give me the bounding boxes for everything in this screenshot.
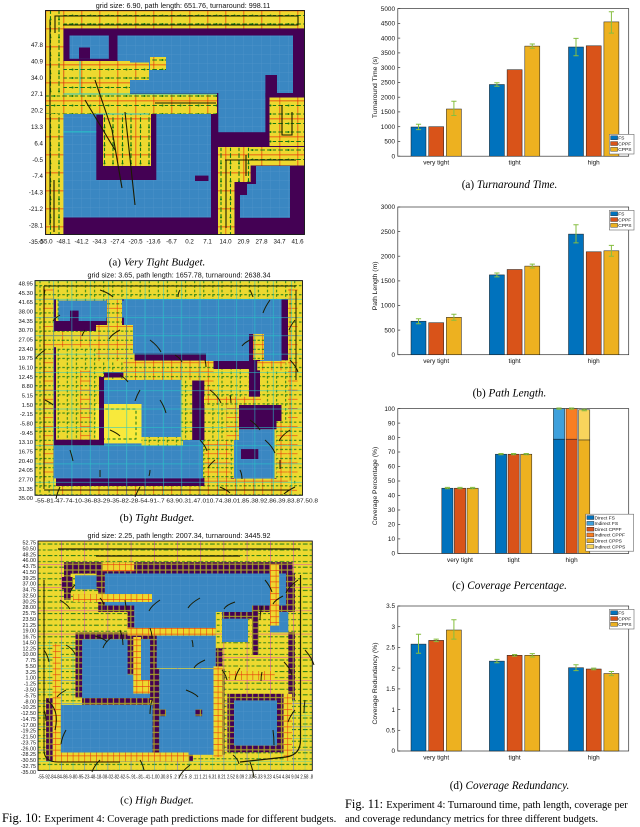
svg-text:60: 60 — [388, 464, 396, 471]
svg-text:500: 500 — [384, 327, 395, 334]
svg-text:30: 30 — [388, 507, 396, 514]
svg-text:1500: 1500 — [381, 109, 396, 116]
svg-text:(b) Path Length.: (b) Path Length. — [473, 388, 547, 400]
svg-text:FS: FS — [618, 611, 625, 617]
svg-text:34.0: 34.0 — [31, 75, 44, 82]
svg-text:50: 50 — [388, 478, 396, 485]
svg-text:80: 80 — [388, 435, 396, 442]
svg-text:(c) Coverage Percentage.: (c) Coverage Percentage. — [452, 580, 567, 592]
svg-text:3.5: 3.5 — [386, 603, 395, 610]
svg-text:2500: 2500 — [381, 229, 396, 236]
svg-text:Coverage Redundancy (%): Coverage Redundancy (%) — [372, 643, 379, 725]
svg-text:Path Length (m): Path Length (m) — [372, 261, 379, 310]
svg-text:Fig. 11: Experiment 4: Turnaro: Fig. 11: Experiment 4: Turnaround time, … — [345, 797, 628, 811]
svg-text:70: 70 — [388, 449, 396, 456]
svg-text:16.10: 16.10 — [18, 366, 33, 372]
svg-text:CPPS: CPPS — [618, 147, 632, 153]
svg-text:500: 500 — [384, 139, 395, 146]
svg-text:CPPS: CPPS — [618, 223, 632, 229]
svg-text:12.45: 12.45 — [18, 375, 33, 381]
svg-text:20.9: 20.9 — [237, 239, 250, 246]
svg-text:-14.3: -14.3 — [29, 190, 44, 197]
svg-text:-2.15: -2.15 — [20, 412, 33, 418]
svg-text:40: 40 — [388, 493, 396, 500]
svg-text:-35.00: -35.00 — [21, 770, 36, 776]
svg-text:(b) Tight Budget.: (b) Tight Budget. — [120, 512, 195, 524]
svg-text:Indirect CPPF: Indirect CPPF — [595, 533, 625, 539]
svg-text:5.15: 5.15 — [22, 394, 33, 400]
svg-text:3000: 3000 — [381, 204, 396, 211]
svg-text:41.65: 41.65 — [18, 300, 33, 306]
svg-text:high: high — [588, 358, 601, 365]
svg-text:7.1: 7.1 — [203, 239, 212, 246]
svg-text:grid size: 3.65, path length:: grid size: 3.65, path length: 1657.78, t… — [87, 271, 270, 280]
svg-text:-20.5: -20.5 — [128, 239, 143, 246]
svg-text:CPPF: CPPF — [618, 141, 631, 147]
svg-text:very tight: very tight — [423, 358, 449, 365]
svg-text:Indirect CPPS: Indirect CPPS — [595, 544, 626, 550]
svg-text:-48.1: -48.1 — [56, 239, 71, 246]
svg-text:tight: tight — [509, 160, 521, 167]
svg-text:high: high — [588, 160, 601, 167]
svg-text:4500: 4500 — [381, 21, 396, 28]
svg-text:-9.45: -9.45 — [20, 431, 33, 437]
svg-text:Direct CPPF: Direct CPPF — [595, 527, 622, 533]
svg-text:(a) Very Tight Budget.: (a) Very Tight Budget. — [109, 257, 206, 269]
svg-text:-55-92-84-84-86-9-80-95-23-48-: -55-92-84-84-86-9-80-95-23-48-18-08-02-8… — [38, 775, 313, 781]
svg-text:FS: FS — [618, 212, 625, 218]
svg-text:-21.2: -21.2 — [29, 206, 44, 213]
svg-text:-7.4: -7.4 — [32, 173, 43, 180]
svg-text:35.00: 35.00 — [18, 496, 33, 502]
svg-text:20: 20 — [388, 522, 396, 529]
svg-text:16.75: 16.75 — [18, 449, 33, 455]
svg-text:very tight: very tight — [423, 160, 449, 167]
svg-text:-27.4: -27.4 — [110, 239, 125, 246]
svg-text:2500: 2500 — [381, 80, 396, 87]
svg-text:3000: 3000 — [381, 65, 396, 72]
svg-text:CPPF: CPPF — [618, 616, 631, 622]
svg-text:Turnaround Time (s): Turnaround Time (s) — [372, 57, 379, 118]
svg-text:4000: 4000 — [381, 35, 396, 42]
svg-text:1000: 1000 — [381, 303, 396, 310]
svg-text:41.6: 41.6 — [291, 239, 304, 246]
svg-text:6.4: 6.4 — [34, 140, 43, 147]
svg-text:-34.3: -34.3 — [92, 239, 107, 246]
svg-text:31.35: 31.35 — [18, 487, 33, 493]
svg-text:-41.2: -41.2 — [74, 239, 89, 246]
svg-text:47.8: 47.8 — [31, 42, 44, 49]
svg-text:Direct CPPS: Direct CPPS — [595, 539, 623, 545]
svg-text:1500: 1500 — [381, 278, 396, 285]
svg-text:1.50: 1.50 — [22, 403, 33, 409]
svg-text:(a) Turnaround Time.: (a) Turnaround Time. — [462, 179, 558, 191]
svg-text:and coverage redundancy metric: and coverage redundancy metrics for thre… — [345, 814, 598, 825]
svg-text:-0.5: -0.5 — [32, 157, 43, 164]
svg-text:3: 3 — [391, 624, 395, 631]
svg-text:Coverage Percentage (%): Coverage Percentage (%) — [372, 447, 379, 526]
svg-text:2.5: 2.5 — [386, 645, 395, 652]
svg-text:20.2: 20.2 — [31, 108, 44, 115]
svg-text:grid size: 2.25, path length:: grid size: 2.25, path length: 2007.34, t… — [87, 531, 270, 540]
svg-text:3500: 3500 — [381, 50, 396, 57]
svg-text:-5.80: -5.80 — [20, 421, 33, 427]
svg-text:high: high — [566, 557, 579, 564]
svg-text:-28.1: -28.1 — [29, 222, 44, 229]
svg-text:34.7: 34.7 — [273, 239, 286, 246]
svg-text:0: 0 — [391, 551, 395, 558]
svg-text:38.00: 38.00 — [18, 310, 33, 316]
svg-text:24.05: 24.05 — [18, 468, 33, 474]
svg-text:14.0: 14.0 — [219, 239, 232, 246]
svg-text:2: 2 — [391, 665, 395, 672]
svg-text:30.70: 30.70 — [18, 328, 33, 334]
svg-text:(c) High Budget.: (c) High Budget. — [120, 795, 194, 807]
svg-text:1.5: 1.5 — [386, 686, 395, 693]
svg-text:CPPS: CPPS — [618, 622, 632, 628]
svg-text:100: 100 — [384, 406, 395, 413]
svg-text:high: high — [588, 755, 601, 762]
svg-text:1: 1 — [391, 707, 395, 714]
svg-text:5000: 5000 — [381, 6, 396, 13]
svg-text:1000: 1000 — [381, 124, 396, 131]
svg-text:Direct FS: Direct FS — [595, 515, 616, 521]
svg-text:27.70: 27.70 — [18, 477, 33, 483]
svg-text:CPPF: CPPF — [618, 217, 631, 223]
svg-text:27.1: 27.1 — [31, 91, 44, 98]
svg-text:-13.6: -13.6 — [146, 239, 161, 246]
svg-text:tight: tight — [508, 557, 520, 564]
svg-text:2000: 2000 — [381, 253, 396, 260]
svg-text:-55-81-47-74-10-36-83-29-35-82: -55-81-47-74-10-36-83-29-35-82-28-54-91-… — [35, 499, 318, 505]
svg-text:19.75: 19.75 — [18, 356, 33, 362]
svg-text:23.40: 23.40 — [18, 347, 33, 353]
svg-text:very tight: very tight — [447, 557, 473, 564]
svg-text:-55.0: -55.0 — [38, 239, 53, 246]
svg-text:Fig. 10: Experiment 4: Coverag: Fig. 10: Experiment 4: Coverage path pre… — [2, 811, 336, 825]
svg-text:0.2: 0.2 — [185, 239, 194, 246]
svg-text:FS: FS — [618, 136, 625, 142]
svg-text:27.05: 27.05 — [18, 338, 33, 344]
svg-text:10: 10 — [388, 536, 396, 543]
svg-text:(d) Coverage Redundancy.: (d) Coverage Redundancy. — [450, 780, 570, 792]
svg-text:13.10: 13.10 — [18, 440, 33, 446]
svg-text:8.80: 8.80 — [22, 384, 33, 390]
svg-text:27.8: 27.8 — [255, 239, 268, 246]
svg-text:40.9: 40.9 — [31, 58, 44, 65]
svg-text:very tight: very tight — [423, 755, 449, 762]
svg-text:Indirect FS: Indirect FS — [595, 521, 619, 527]
svg-text:tight: tight — [509, 755, 521, 762]
svg-text:tight: tight — [509, 358, 521, 365]
svg-text:45.30: 45.30 — [18, 291, 33, 297]
svg-text:0: 0 — [391, 748, 395, 755]
svg-text:-6.7: -6.7 — [166, 239, 177, 246]
svg-text:2000: 2000 — [381, 94, 396, 101]
svg-text:0: 0 — [391, 153, 395, 160]
svg-text:grid size: 6.90, path length:: grid size: 6.90, path length: 651.76, tu… — [96, 1, 271, 10]
svg-text:90: 90 — [388, 420, 396, 427]
svg-text:0: 0 — [391, 352, 395, 359]
svg-text:48.95: 48.95 — [18, 282, 33, 288]
svg-text:0.5: 0.5 — [386, 728, 395, 735]
svg-text:34.35: 34.35 — [18, 319, 33, 325]
svg-text:20.40: 20.40 — [18, 459, 33, 465]
svg-text:13.3: 13.3 — [31, 124, 44, 131]
